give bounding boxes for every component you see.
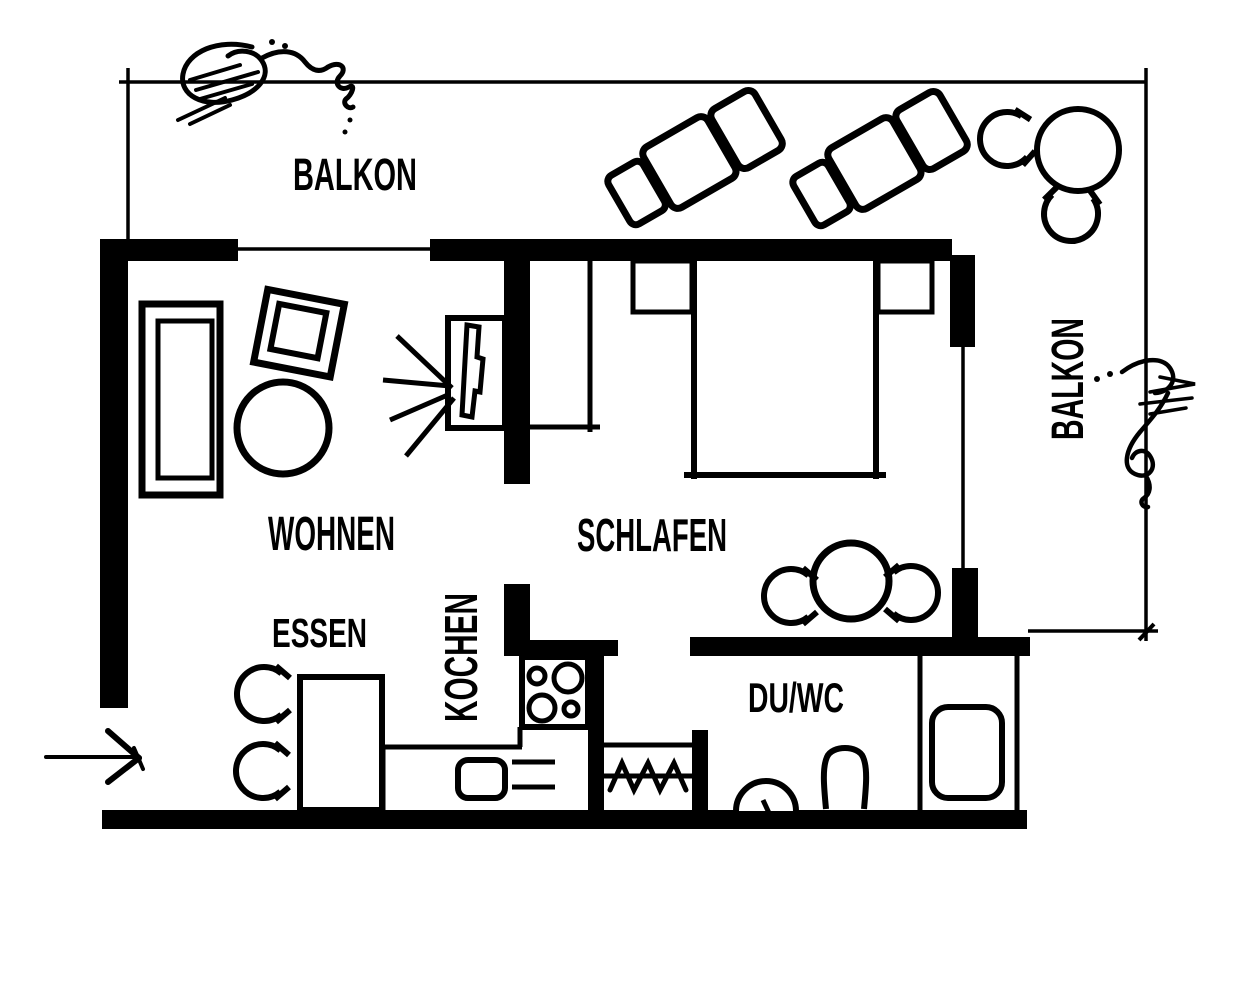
floor-plan: BALKON BALKON WOHNEN SCHLAFEN ESSEN KOCH… <box>0 0 1235 1000</box>
sink-basin <box>458 760 505 798</box>
wall-stub-kitchen <box>504 584 530 642</box>
coffee-table <box>237 382 329 474</box>
stove <box>522 657 588 727</box>
wall-duwc-stub <box>692 730 708 812</box>
bedroom-table <box>813 543 889 619</box>
sun-lounger-2 <box>787 88 971 235</box>
wall-right-lower <box>952 568 978 639</box>
wall-right-upper <box>950 255 975 347</box>
label-kochen: KOCHEN <box>435 593 487 722</box>
bed <box>684 261 886 479</box>
balcony-table-group <box>964 96 1119 255</box>
bedroom-table-group <box>753 543 949 634</box>
nightstand-right <box>878 261 932 312</box>
label-wohnen: WOHNEN <box>268 508 395 561</box>
dining-chair-1 <box>226 656 302 732</box>
dining-table <box>300 677 382 810</box>
label-schlafen: SCHLAFEN <box>577 509 727 561</box>
label-essen: ESSEN <box>272 610 367 656</box>
toilet <box>824 748 866 809</box>
wall-bottom <box>102 810 1027 829</box>
label-balkon-right: BALKON <box>1042 318 1093 440</box>
plant-top-left-icon <box>178 39 353 135</box>
kitchen-sink <box>458 760 555 798</box>
dining-chair-2 <box>225 733 301 809</box>
nightstand-left <box>633 261 692 312</box>
label-duwc: DU/WC <box>748 674 844 721</box>
wall-schlafen-bottom <box>690 637 1030 656</box>
wall-left <box>100 239 128 708</box>
entrance-arrow-icon <box>46 731 143 782</box>
wall-top-main <box>430 239 952 261</box>
sofa <box>142 304 220 495</box>
walls <box>100 239 1030 829</box>
tv-rays-icon <box>383 336 454 456</box>
floor-plan-page: BALKON BALKON WOHNEN SCHLAFEN ESSEN KOCH… <box>0 0 1235 1000</box>
sun-lounger-1 <box>602 87 786 234</box>
shower-tray <box>932 707 1002 798</box>
wardrobe <box>528 261 600 432</box>
coat-rack <box>604 745 698 790</box>
armchair <box>254 289 345 377</box>
label-balkon-top: BALKON <box>293 149 417 200</box>
balcony-table <box>1037 109 1119 191</box>
tv-unit <box>383 318 505 456</box>
